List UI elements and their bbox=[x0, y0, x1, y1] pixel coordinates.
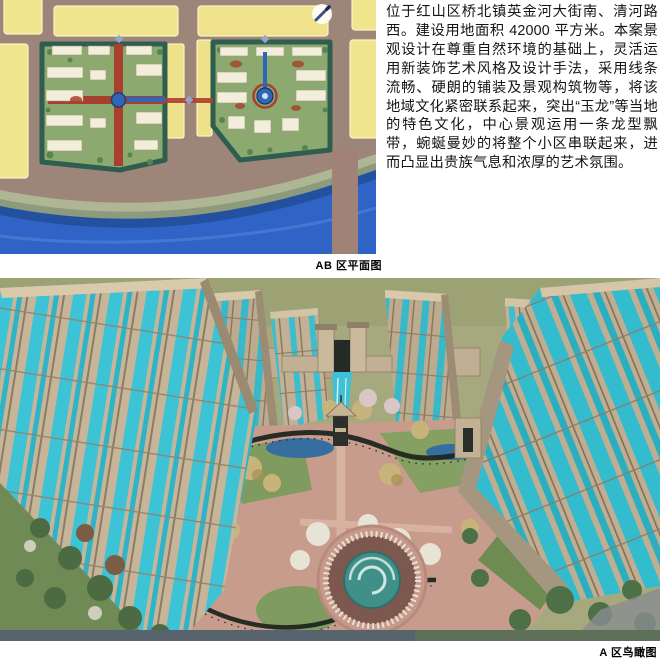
pool-left bbox=[266, 438, 334, 458]
document-page: AB 区平面图 位于红山区桥北镇英金河大街南、清河路西。建设用地面积 42000… bbox=[0, 0, 660, 661]
site-plan-image bbox=[0, 0, 376, 254]
fountain-plaza bbox=[318, 526, 426, 634]
aerial-view-figure bbox=[0, 278, 660, 641]
aerial-view-caption: A 区鸟瞰图 bbox=[0, 644, 657, 660]
site-plan-caption: AB 区平面图 bbox=[0, 257, 382, 273]
project-description: 位于红山区桥北镇英金河大街南、清河路西。建设用地面积 42000 平方米。本案景… bbox=[386, 3, 658, 173]
bottom-band bbox=[0, 630, 660, 641]
gate-opening bbox=[334, 340, 350, 372]
parcel-a-canal bbox=[263, 52, 267, 88]
compass-icon bbox=[312, 4, 332, 24]
parcel-b-pond bbox=[112, 93, 126, 107]
aerial-view-image bbox=[0, 278, 660, 641]
parcel-b-canal bbox=[127, 97, 165, 102]
parcel-a-pond-center bbox=[262, 93, 268, 99]
site-plan-figure bbox=[0, 0, 376, 254]
bridge-road bbox=[332, 148, 358, 254]
parcel-a bbox=[213, 42, 330, 160]
parcel-b bbox=[42, 44, 165, 170]
